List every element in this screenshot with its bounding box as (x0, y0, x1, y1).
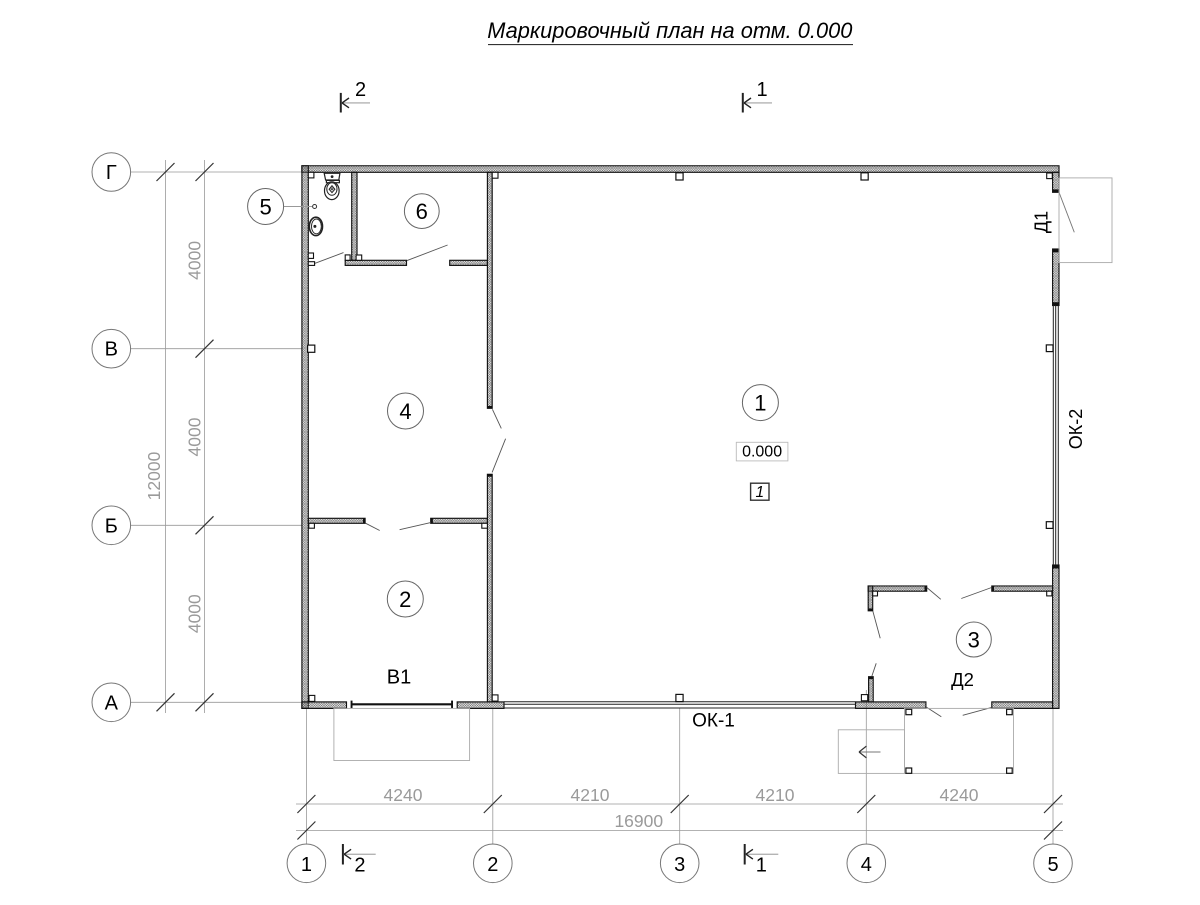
svg-text:Д1: Д1 (1032, 211, 1052, 233)
svg-text:5: 5 (1047, 854, 1058, 876)
svg-text:Маркировочный план на отм. 0.0: Маркировочный план на отм. 0.000 (487, 18, 852, 43)
svg-text:Б: Б (105, 515, 118, 537)
svg-text:4240: 4240 (940, 785, 979, 805)
svg-text:4000: 4000 (185, 241, 205, 280)
svg-text:А: А (105, 692, 119, 714)
svg-text:3: 3 (968, 628, 980, 653)
svg-text:4210: 4210 (756, 785, 795, 805)
svg-text:ОК-2: ОК-2 (1066, 409, 1086, 450)
svg-text:4240: 4240 (384, 785, 423, 805)
svg-text:1: 1 (755, 484, 764, 501)
svg-text:12000: 12000 (144, 451, 164, 500)
svg-text:2: 2 (355, 79, 366, 101)
svg-text:В1: В1 (387, 666, 411, 688)
svg-text:1: 1 (756, 855, 767, 877)
svg-text:ОК-1: ОК-1 (692, 710, 735, 731)
svg-text:2: 2 (354, 855, 365, 877)
svg-text:2: 2 (399, 587, 411, 612)
svg-text:4: 4 (399, 399, 411, 424)
svg-text:4210: 4210 (571, 785, 610, 805)
svg-text:16900: 16900 (614, 811, 663, 831)
svg-text:3: 3 (674, 854, 685, 876)
svg-text:4000: 4000 (185, 417, 205, 456)
svg-text:4000: 4000 (185, 594, 205, 633)
svg-text:Д2: Д2 (951, 669, 974, 690)
svg-text:6: 6 (416, 199, 428, 224)
svg-text:4: 4 (861, 854, 872, 876)
svg-text:1: 1 (301, 854, 312, 876)
svg-text:1: 1 (756, 79, 767, 101)
svg-text:1: 1 (754, 391, 766, 416)
svg-text:Г: Г (106, 162, 117, 184)
svg-text:5: 5 (259, 195, 271, 220)
svg-text:2: 2 (487, 854, 498, 876)
svg-text:В: В (105, 339, 118, 361)
svg-text:0.000: 0.000 (742, 444, 782, 461)
